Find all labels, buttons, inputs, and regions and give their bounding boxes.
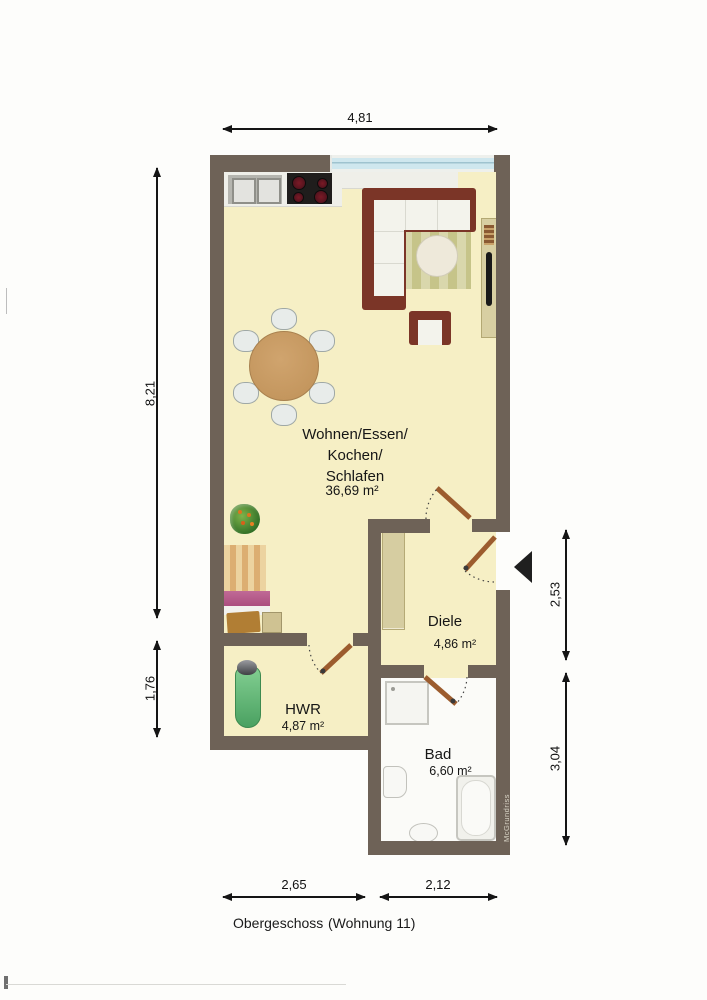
dimension-line-bottom-right: [380, 896, 497, 898]
room-label-bad: Bad: [398, 744, 478, 765]
dimension-label-left-lower: 1,76: [143, 667, 158, 711]
books: [484, 225, 494, 245]
dimension-line-right-lower: [565, 673, 567, 845]
wall: [368, 665, 424, 678]
burner-icon: [293, 192, 304, 203]
room-area-wohnen: 36,69 m²: [287, 483, 417, 498]
room-area-diele: 4,86 m²: [405, 637, 505, 651]
room-label-line: Wohnen/Essen/: [287, 424, 423, 445]
wall: [368, 678, 381, 855]
burner-icon: [317, 178, 328, 189]
bed: [224, 545, 266, 593]
dimension-label-top: 4,81: [338, 110, 382, 125]
dimension-label-bottom-left: 2,65: [272, 877, 316, 892]
dimension-line-bottom-left: [223, 896, 365, 898]
room-label-wohnen: Wohnen/Essen/ Kochen/ Schlafen: [287, 424, 423, 487]
room-label-diele: Diele: [405, 611, 485, 632]
room-label-hwr: HWR: [258, 699, 348, 720]
iron: [237, 660, 257, 675]
room-label-line: Kochen/: [287, 445, 423, 466]
watermark: McGrundriss: [502, 776, 514, 860]
dimension-label-bottom-right: 2,12: [416, 877, 460, 892]
coffee-table: [416, 235, 458, 277]
scan-artifact: [4, 976, 8, 989]
burner-icon: [292, 176, 306, 190]
scan-artifact: [6, 288, 7, 314]
entrance-arrow-icon: [514, 551, 532, 583]
window: [330, 155, 500, 172]
wall: [210, 155, 332, 172]
wall: [468, 665, 510, 678]
sink-basin: [257, 178, 281, 204]
wall: [496, 155, 510, 519]
wall: [353, 633, 381, 646]
nightstand: [262, 612, 282, 633]
tv-board: [486, 252, 492, 306]
burner-icon: [314, 190, 328, 204]
dimension-label-right-lower: 3,04: [548, 737, 563, 781]
dining-chair: [271, 308, 297, 330]
dining-chair: [271, 404, 297, 426]
kitchen-counter: [342, 172, 458, 189]
wall: [210, 633, 307, 646]
wall: [368, 841, 510, 855]
wall: [210, 736, 381, 750]
dimension-label-right-upper: 2,53: [548, 573, 563, 617]
floor-plan-page: Wohnen/Essen/ Kochen/ Schlafen 36,69 m² …: [0, 0, 707, 1000]
sofa-cushions: [374, 200, 404, 296]
washbasin: [409, 823, 438, 843]
scan-artifact: [6, 984, 346, 985]
bathtub-inner: [461, 780, 491, 836]
plant: [230, 504, 260, 534]
armchair: [409, 311, 451, 345]
dimension-line-top: [223, 128, 497, 130]
dimension-line-right-upper: [565, 530, 567, 660]
room-area-bad: 6,60 m²: [398, 764, 503, 778]
wall: [210, 155, 224, 750]
wardrobe: [382, 527, 405, 630]
caption-unit: (Wohnung 11): [328, 915, 415, 931]
caption-floor: Obergeschoss: [233, 915, 323, 931]
room-area-hwr: 4,87 m²: [258, 719, 348, 733]
blanket: [226, 611, 260, 634]
wall: [472, 519, 510, 532]
sink-basin: [232, 178, 256, 204]
dimension-label-left-upper: 8,21: [143, 372, 158, 416]
plant-flowers: [238, 510, 242, 514]
dining-table: [249, 331, 319, 401]
shower-drain: [391, 687, 395, 691]
